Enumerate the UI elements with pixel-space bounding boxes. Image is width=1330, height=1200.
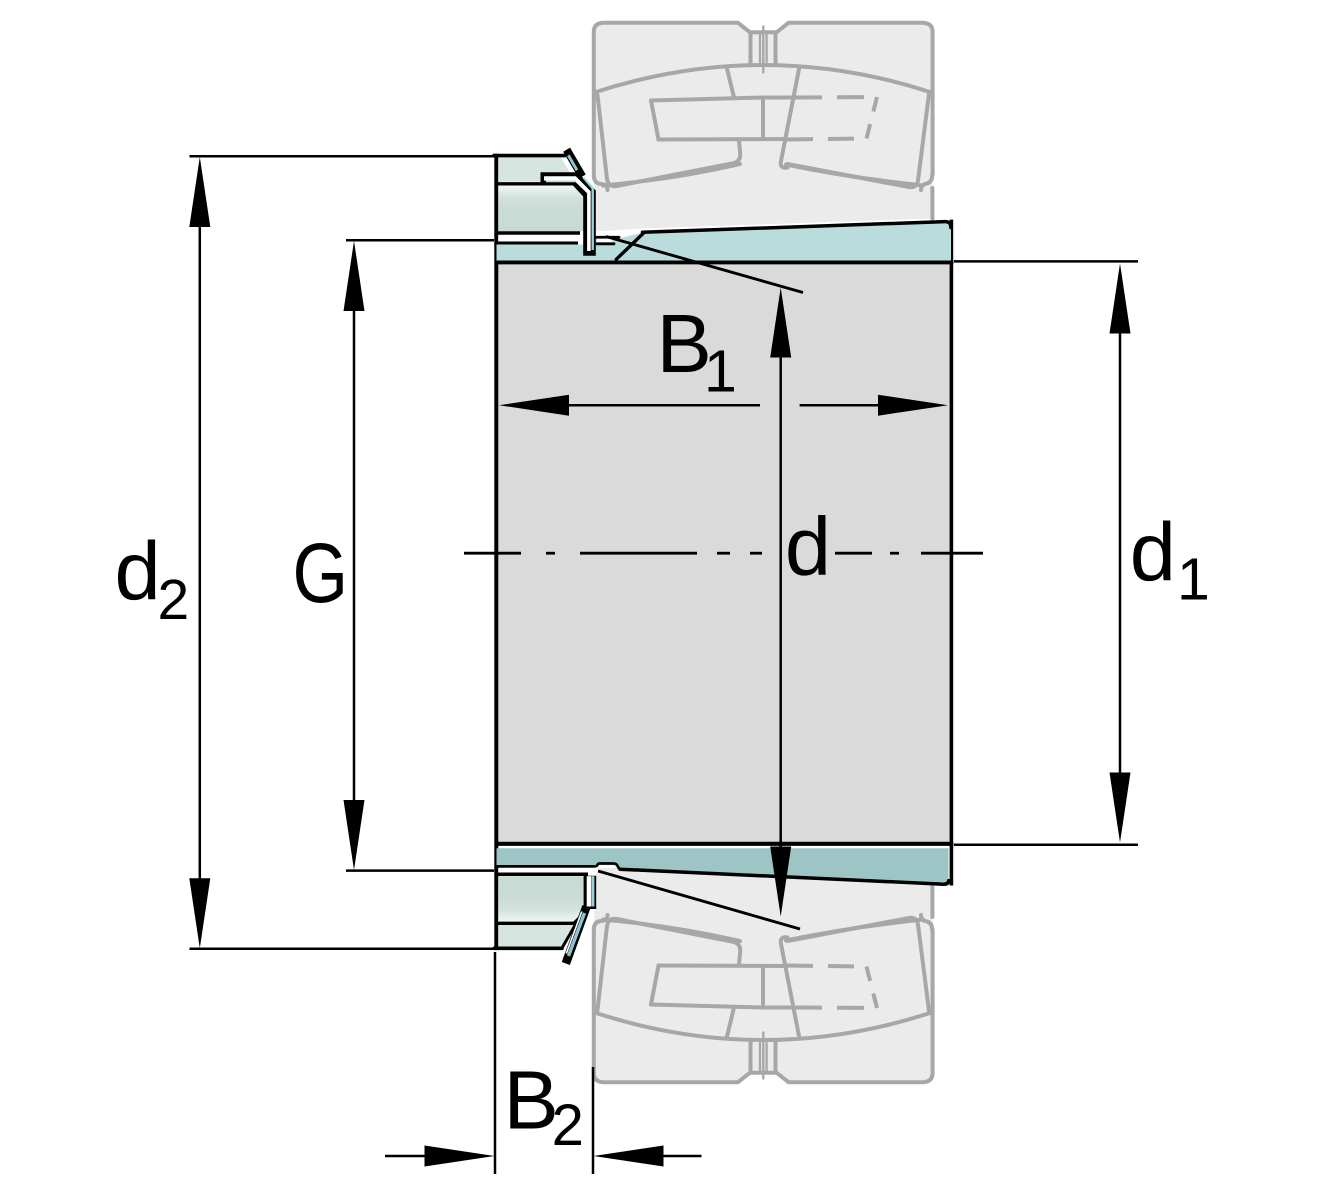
- svg-text:d: d: [785, 500, 831, 593]
- svg-text:1: 1: [704, 338, 737, 404]
- svg-text:2: 2: [158, 568, 190, 632]
- svg-text:1: 1: [1177, 546, 1210, 612]
- svg-text:2: 2: [552, 1093, 584, 1158]
- svg-text:G: G: [293, 525, 349, 620]
- svg-text:B: B: [504, 1053, 559, 1146]
- svg-text:d: d: [115, 525, 161, 618]
- svg-text:d: d: [1130, 506, 1176, 599]
